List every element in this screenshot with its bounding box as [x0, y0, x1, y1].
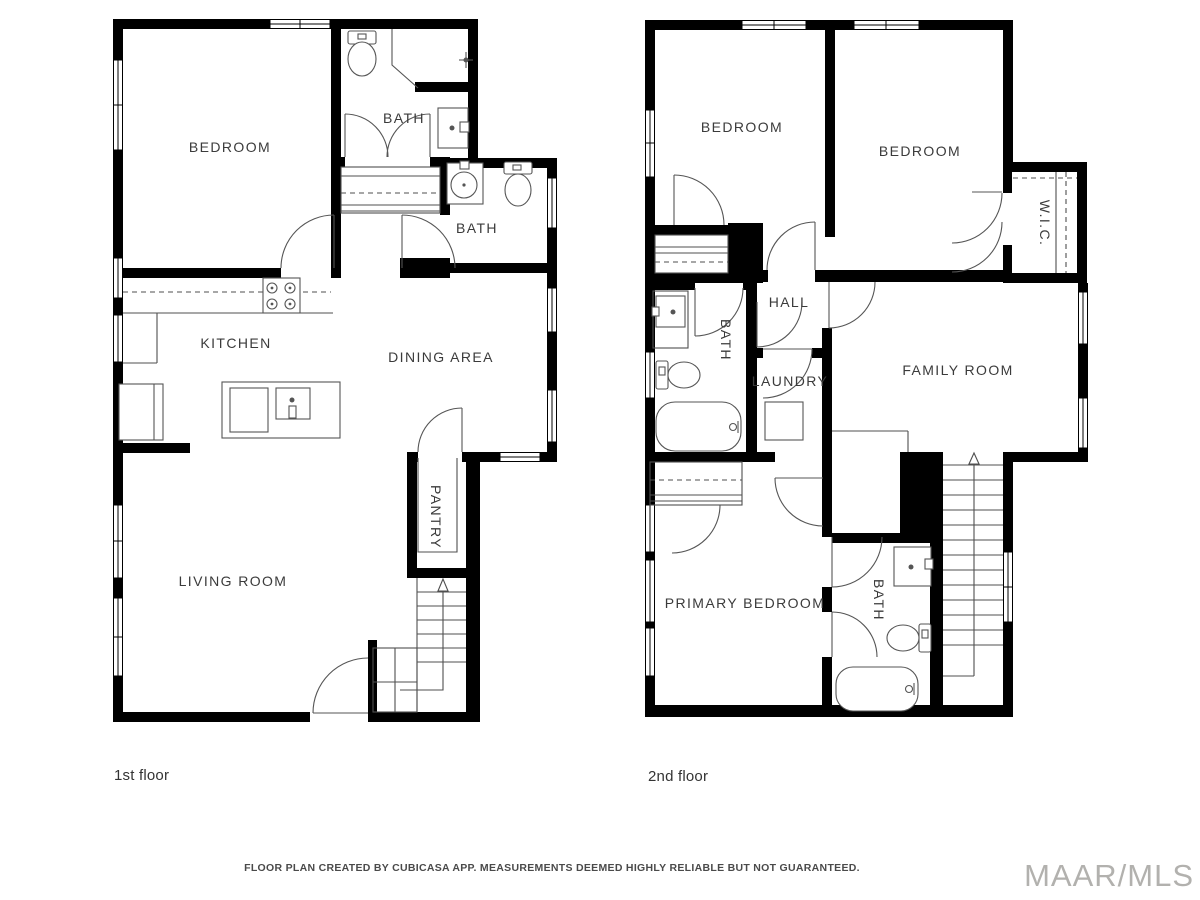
floorplan-graphics — [0, 0, 1200, 900]
toilet-icon — [504, 162, 532, 206]
footer-disclaimer: FLOOR PLAN CREATED BY CUBICASA APP. MEAS… — [244, 862, 860, 874]
window-icon — [548, 178, 557, 228]
stairs-icon — [943, 453, 1003, 676]
window-icon — [114, 60, 123, 150]
window-icon — [548, 288, 557, 332]
window-icon — [646, 628, 655, 676]
window-icon — [548, 390, 557, 442]
closet-icon — [655, 235, 728, 273]
door-arc — [281, 215, 334, 268]
sink-icon — [652, 291, 688, 348]
room-label-family-room: FAMILY ROOM — [902, 362, 1013, 378]
closet-icon — [650, 462, 742, 505]
mls-watermark: MAAR/MLS — [1024, 858, 1194, 894]
door-arc — [767, 222, 815, 270]
room-label-bath-mid: BATH — [718, 319, 734, 361]
room-label-wic: W.I.C. — [1037, 200, 1053, 247]
window-icon — [114, 598, 123, 676]
room-label-bedroom: BEDROOM — [189, 139, 271, 155]
room-label-hall: HALL — [769, 294, 810, 310]
window-icon — [646, 352, 655, 398]
room-label-bath-bottom: BATH — [871, 579, 887, 621]
sink-icon — [894, 547, 933, 586]
window-icon — [500, 453, 540, 462]
walls-floor1 — [113, 19, 557, 722]
room-label-dining-area: DINING AREA — [388, 349, 494, 365]
bathtub-icon — [656, 402, 741, 451]
toilet-icon — [656, 361, 700, 389]
room-label-bath-right: BATH — [456, 220, 498, 236]
room-label-pantry: PANTRY — [428, 485, 444, 549]
stair-railing — [832, 431, 908, 452]
toilet-icon — [348, 31, 376, 76]
stairs-icon — [373, 578, 466, 712]
first-floor-plan — [113, 19, 557, 722]
bathtub-icon — [836, 667, 918, 711]
room-label-bedroom-right: BEDROOM — [879, 143, 961, 159]
closet-icon — [341, 167, 440, 213]
room-label-bedroom-left: BEDROOM — [701, 119, 783, 135]
door-arc — [674, 175, 724, 225]
window-icon — [1079, 292, 1088, 344]
room-label-kitchen: KITCHEN — [200, 335, 271, 351]
washer-icon — [765, 402, 803, 440]
room-label-bath-top: BATH — [383, 110, 425, 126]
window-icon — [114, 315, 123, 362]
door-arc — [775, 478, 823, 526]
sink-icon — [447, 161, 483, 204]
door-arc — [418, 408, 462, 452]
door-arc — [345, 114, 388, 157]
window-icon — [646, 110, 655, 177]
floorplan-page: BEDROOM BATH BATH KITCHEN DINING AREA PA… — [0, 0, 1200, 900]
floor2-caption: 2nd floor — [648, 768, 708, 785]
window-icon — [742, 21, 806, 30]
sink-icon — [438, 108, 469, 148]
room-label-primary-bedroom: PRIMARY BEDROOM — [665, 595, 826, 611]
kitchen-island — [222, 382, 340, 438]
shower-icon — [392, 29, 473, 88]
window-icon — [1004, 552, 1013, 622]
door-arc — [952, 192, 1002, 272]
room-label-living-room: LIVING ROOM — [179, 573, 288, 589]
refrigerator-icon — [119, 384, 163, 440]
room-label-laundry: LAUNDRY — [752, 373, 828, 389]
window-icon — [646, 505, 655, 552]
window-icon — [114, 505, 123, 578]
floor1-caption: 1st floor — [114, 767, 169, 784]
door-arc — [829, 282, 875, 328]
window-icon — [854, 21, 919, 30]
stove-icon — [263, 278, 300, 313]
door-arc — [313, 658, 368, 713]
kitchen-counter — [123, 292, 333, 363]
window-icon — [1079, 398, 1088, 448]
window-icon — [270, 20, 330, 29]
door-arc — [672, 505, 720, 553]
window-icon — [114, 258, 123, 298]
window-icon — [646, 560, 655, 622]
toilet-icon — [887, 624, 931, 652]
